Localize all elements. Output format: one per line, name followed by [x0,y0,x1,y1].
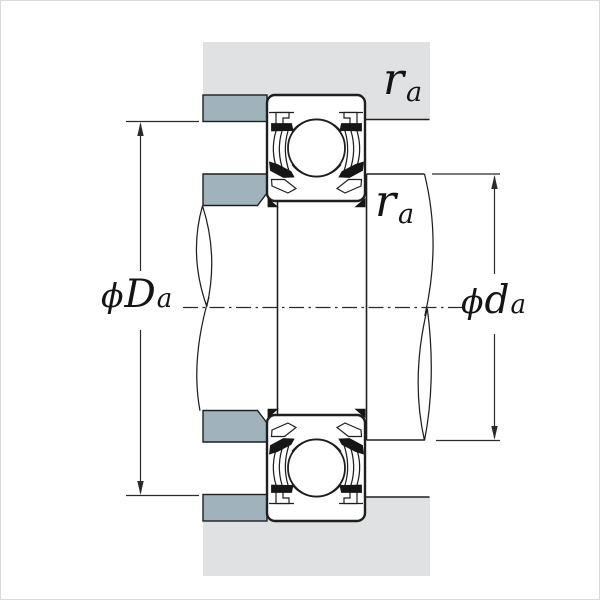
housing-shoulder-bottom-outer [203,495,267,522]
housing-shoulder-bottom-inner [203,411,267,443]
housing-shoulder-top-inner [203,174,267,206]
bearing-mount-diagram: ϕDa ϕda ra ra [0,0,600,600]
seal-cap [272,124,294,132]
housing-shoulder-top-outer [203,95,267,122]
diagram-canvas: ϕDa ϕda ra ra [0,0,600,600]
ball [288,120,345,177]
